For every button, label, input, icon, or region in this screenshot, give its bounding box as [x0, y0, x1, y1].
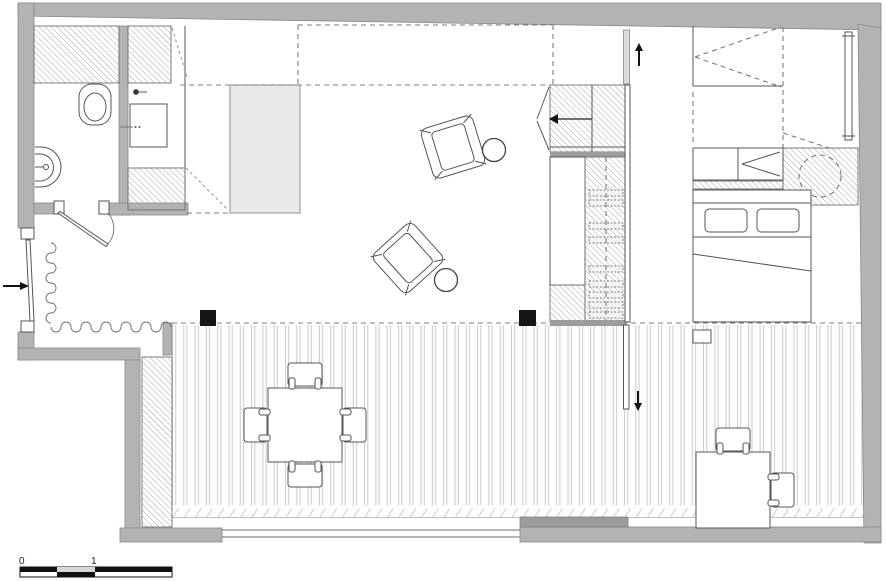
bathroom-door	[58, 212, 108, 247]
under-stair-cabinet	[550, 285, 585, 322]
scale-label-zero: 0	[19, 556, 25, 567]
side-table	[435, 269, 458, 292]
structural-column	[200, 310, 216, 326]
glass-balustrade	[624, 30, 630, 84]
wall-bottom-parapet	[520, 517, 628, 527]
outdoor-chair	[244, 408, 270, 442]
wardrobe-door-leaf	[537, 121, 549, 150]
outdoor-desk	[696, 452, 770, 528]
closet-door-swing	[783, 133, 835, 150]
door-swing-arc	[107, 215, 114, 245]
outdoor-dining-table	[268, 388, 342, 462]
terrace-step	[693, 330, 711, 343]
scale-label-one: 1	[91, 556, 97, 567]
stairs-up-arrow-head	[635, 43, 643, 51]
door-jamb	[21, 321, 34, 332]
basin-faucet-head	[44, 165, 49, 170]
door-jamb	[21, 228, 34, 239]
sink-knob	[135, 126, 137, 128]
bathroom-storage	[34, 26, 119, 83]
bedroom	[693, 26, 858, 343]
wall-entry-bottom	[18, 348, 140, 360]
scale-segment	[57, 567, 95, 572]
glass-screen	[624, 325, 630, 409]
cabinet-door-swing	[186, 168, 227, 209]
entry	[3, 228, 171, 332]
entry-door	[26, 240, 34, 321]
sink-faucet	[133, 89, 139, 95]
cabinet-door-swing	[172, 28, 188, 80]
stair-side-wall	[625, 85, 630, 322]
door-jamb	[99, 201, 109, 214]
wall-left-upper	[18, 3, 34, 228]
scale-segment	[95, 567, 172, 572]
kitchen-lower-cabinet	[128, 168, 185, 210]
kitchen-upper-cabinet	[128, 26, 171, 83]
structural-column	[519, 310, 536, 326]
outdoor-chair	[288, 461, 322, 487]
scale-segment	[57, 572, 95, 577]
stair-landing-wall	[550, 152, 627, 157]
curtain	[51, 322, 171, 332]
outdoor-chair	[288, 363, 322, 389]
outdoor-chair	[340, 408, 366, 442]
armchair	[420, 114, 487, 180]
stair-bottom-wall	[550, 320, 627, 326]
floor-plan-page: 0 1	[0, 0, 886, 581]
desk-chair	[768, 473, 794, 507]
wall-bathroom-right	[119, 26, 128, 215]
wall-stub-entry	[163, 323, 172, 355]
kitchen	[120, 26, 300, 213]
kitchen-sink	[130, 104, 167, 147]
under-stair-storage	[550, 157, 585, 285]
side-table	[483, 139, 506, 162]
wall-bottom-right	[520, 527, 881, 542]
curtain	[46, 243, 56, 323]
radiator	[845, 32, 852, 140]
kitchen-island	[230, 85, 300, 213]
armchair	[371, 221, 446, 296]
closet-door-swing	[695, 27, 781, 57]
desk-chair	[716, 428, 750, 454]
pillow	[757, 209, 799, 232]
terrace-side-strip	[142, 357, 172, 527]
wardrobe-door-leaf	[537, 87, 549, 119]
scale-bar: 0 1	[19, 556, 172, 577]
wall-terrace-left	[125, 360, 140, 528]
wall-bottom-left-block	[120, 528, 222, 542]
scale-segment	[20, 567, 57, 572]
pillow	[705, 209, 747, 232]
floor-plan-drawing: 0 1	[0, 0, 886, 581]
sink-knob	[139, 126, 141, 128]
closet-door-swing	[695, 57, 781, 87]
wall-bathroom-bottom-left	[34, 203, 56, 214]
headboard-ledge	[693, 181, 783, 189]
